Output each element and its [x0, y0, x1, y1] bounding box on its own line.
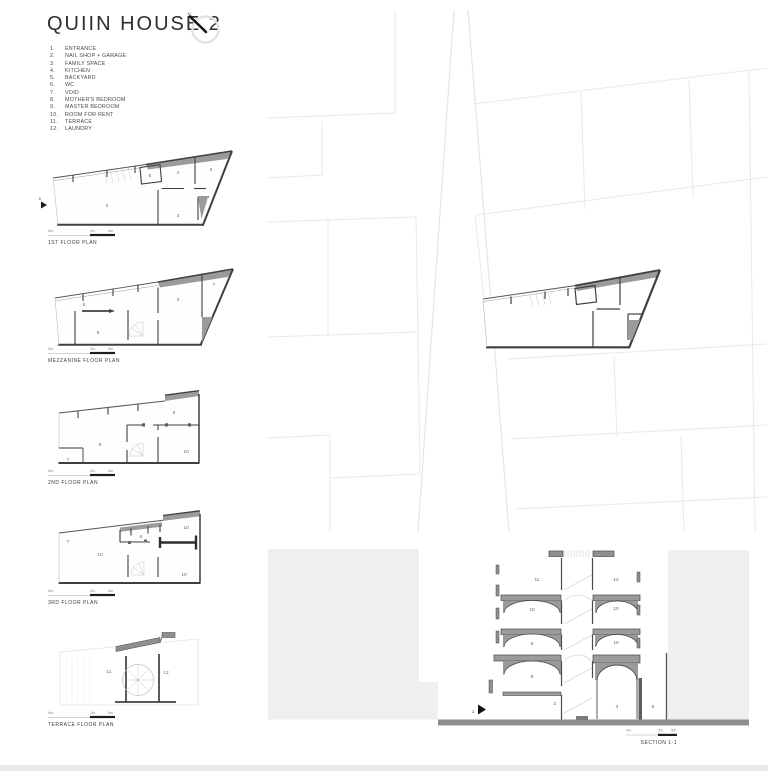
plan-label: MEZZANINE FLOOR PLAN: [48, 358, 120, 364]
road-edges: [418, 10, 509, 532]
first-floor-plan: 1 2 6 4 5 3 0m 2m 5m 1ST FLOOR PLAN: [38, 140, 278, 248]
room-number: 6: [173, 410, 176, 416]
legend-item: 7.VOID: [50, 90, 126, 97]
svg-text:0m: 0m: [48, 589, 53, 593]
second-floor-plan: 7 9 6 10 0m 2m 5m 2ND FLOOR PLAN: [38, 380, 278, 488]
room-number: 12: [613, 577, 619, 583]
room-number: 10: [183, 449, 189, 455]
legend-item: 2.NAIL SHOP + GARAGE: [50, 53, 126, 60]
svg-text:5m: 5m: [108, 589, 113, 593]
legend-item: 3.FAMILY SPACE: [50, 61, 126, 68]
site-plan: [268, 8, 768, 533]
parcel-lines: [268, 11, 767, 532]
svg-text:5m: 5m: [108, 347, 113, 351]
legend-item: 11.TERRACE: [50, 119, 126, 126]
room-number: 6: [149, 173, 152, 179]
section-1-1: 1 11 12 10 10 9 10 8 2 3 5 0m 2m 5m SECT…: [265, 528, 765, 763]
svg-text:0m: 0m: [48, 469, 53, 473]
mezzanine-floor-plan: 6 8 3 7 0m 2m 5m MEZZANINE FLOOR PLAN: [38, 258, 278, 366]
plan-label: 3RD FLOOR PLAN: [48, 600, 98, 606]
site-building-footprint: [483, 270, 660, 348]
legend-item: 4.KITCHEN: [50, 68, 126, 75]
room-number: 3: [177, 213, 180, 219]
room-number: 7: [67, 457, 70, 463]
room-number: 10: [97, 552, 103, 558]
svg-text:0m: 0m: [48, 229, 53, 233]
adjacent-building-right: [668, 550, 749, 720]
legend-item: 10.ROOM FOR RENT: [50, 112, 126, 119]
north-circle: [193, 17, 219, 43]
room-number: 7: [213, 282, 216, 288]
room-number: 7: [67, 539, 70, 545]
scale-bar: 0m 2m 5m: [626, 729, 677, 737]
svg-text:0m: 0m: [626, 729, 631, 733]
room-number: 12: [163, 670, 169, 676]
room-number: 8: [97, 330, 100, 336]
room-number: 9: [531, 641, 534, 647]
room-number: 10: [181, 572, 187, 578]
first-floor-plan-drawing: 1 2 6 4 5 3: [39, 151, 232, 225]
svg-text:0m: 0m: [48, 347, 53, 351]
svg-text:2m: 2m: [90, 469, 95, 473]
legend-item: 12.LAUNDRY: [50, 126, 126, 133]
second-floor-plan-drawing: 7 9 6 10: [59, 391, 200, 463]
room-number: 3: [177, 297, 180, 303]
room-number: 5: [210, 167, 213, 173]
room-number: 10: [613, 640, 619, 646]
spiral-stair: [123, 665, 154, 696]
room-number: 6: [140, 534, 143, 540]
section-cut-marker: [478, 705, 486, 715]
svg-text:2m: 2m: [658, 729, 663, 733]
svg-text:5m: 5m: [108, 229, 113, 233]
legend-item: 1.ENTRANCE: [50, 46, 126, 53]
room-number: 10: [613, 606, 619, 612]
plan-label: 2ND FLOOR PLAN: [48, 480, 98, 486]
door-step: [576, 716, 588, 720]
section-label: SECTION 1-1: [641, 740, 677, 746]
mezzanine-plan-drawing: 6 8 3 7: [55, 269, 233, 345]
svg-text:5m: 5m: [108, 711, 113, 715]
room-number: 10: [183, 525, 189, 531]
scale-bar: 0m 2m 5m: [48, 469, 115, 476]
room-number: 2: [106, 203, 109, 209]
terrace-floor-plan: 11 12 0m 2m 5m TERRACE FLOOR PLAN: [38, 622, 278, 730]
room-number: 6: [83, 302, 86, 308]
room-number: 9: [99, 442, 102, 448]
legend-item: 6.WC: [50, 82, 126, 89]
room-number: 8: [531, 674, 534, 680]
adjacent-building-left: [268, 549, 438, 720]
scale-bar: 0m 2m 5m: [48, 589, 115, 596]
svg-text:2m: 2m: [90, 347, 95, 351]
third-floor-plan: 7 10 6 10 10 0m 2m 5m 3RD FLOOR PLAN: [38, 500, 278, 608]
scale-bar: 0m 2m 5m: [48, 711, 115, 718]
svg-text:2m: 2m: [90, 229, 95, 233]
room-number: 2: [554, 701, 557, 707]
room-number: 10: [529, 607, 535, 613]
sheet-bottom-edge: [0, 765, 768, 771]
svg-text:5m: 5m: [108, 469, 113, 473]
plan-label: 1ST FLOOR PLAN: [48, 240, 97, 246]
third-floor-plan-drawing: 7 10 6 10 10: [59, 511, 201, 583]
room-number: 11: [535, 577, 540, 583]
terrace-plan-drawing: 11 12: [60, 633, 198, 706]
section-cut-marker: [41, 202, 47, 209]
svg-text:2m: 2m: [90, 711, 95, 715]
room-legend: 1.ENTRANCE 2.NAIL SHOP + GARAGE 3.FAMILY…: [50, 46, 126, 134]
legend-item: 5.BACKYARD: [50, 75, 126, 82]
north-arrow-icon: N.: [185, 10, 227, 52]
svg-text:0m: 0m: [48, 711, 53, 715]
room-number: 11: [107, 669, 112, 675]
plan-label: TERRACE FLOOR PLAN: [48, 722, 114, 728]
ground-line: [438, 720, 749, 726]
room-number: 3: [616, 704, 619, 710]
scale-bar: 0m 2m 5m: [48, 229, 115, 236]
north-label: N.: [188, 12, 193, 17]
stair-shaft: [564, 550, 592, 713]
room-number: 5: [652, 704, 655, 710]
room-number: 4: [177, 170, 180, 176]
section-cut-number: 1: [39, 196, 42, 201]
legend-item: 9.MASTER BEDROOM: [50, 104, 126, 111]
legend-item: 8.MOTHER'S BEDROOM: [50, 97, 126, 104]
section-cut-number: 1: [472, 709, 475, 714]
stair-shaft-walls: [562, 558, 593, 720]
left-room-stack: [489, 565, 561, 696]
svg-text:5m: 5m: [671, 729, 676, 733]
svg-text:2m: 2m: [90, 589, 95, 593]
scale-bar: 0m 2m 5m: [48, 347, 115, 354]
